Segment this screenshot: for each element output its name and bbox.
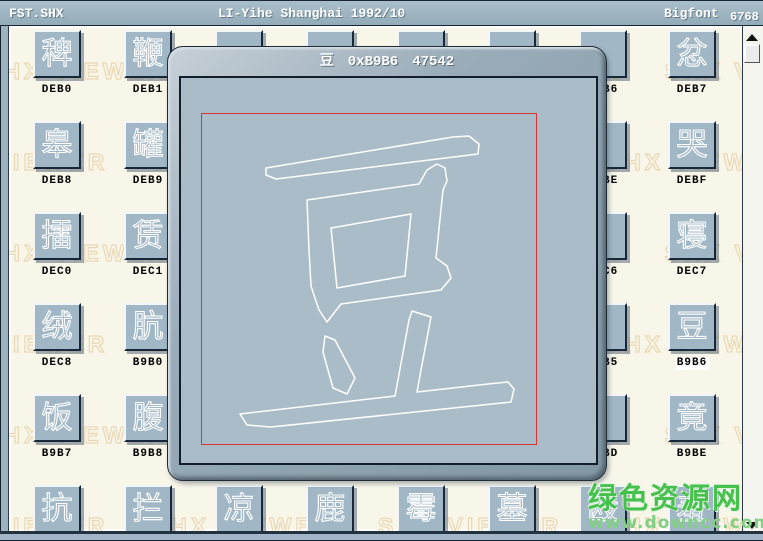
glyph-tile-face[interactable]: 拦 — [124, 485, 172, 531]
glyph-code-label: DEBF — [668, 175, 716, 188]
glyph-tile-face[interactable]: 肮 — [124, 303, 172, 351]
scrollbar-thumb[interactable] — [744, 44, 760, 63]
glyph-character: 拦 — [133, 487, 164, 531]
glyph-tile-face[interactable]: 墓 — [488, 485, 536, 531]
scrollbar-track[interactable] — [743, 26, 763, 534]
glyph-tile-face[interactable]: 皋 — [33, 121, 81, 169]
glyph-character: 皋 — [42, 123, 73, 167]
glyph-tile[interactable]: 殴 — [579, 485, 627, 531]
glyph-character: 腹 — [133, 396, 164, 440]
glyph-tile-face[interactable]: 赁 — [124, 212, 172, 260]
glyph-tile-dec7[interactable]: 寝DEC7 — [668, 212, 716, 279]
glyph-character: 殴 — [588, 487, 619, 531]
file-name: FST.SHX — [9, 6, 64, 21]
glyph-character: 肮 — [133, 305, 164, 349]
scroll-up-icon[interactable] — [746, 34, 758, 41]
glyph-tile-face[interactable]: 忿 — [668, 30, 716, 78]
glyph-tile-deb8[interactable]: 皋DEB8 — [33, 121, 81, 188]
glyph-tile-face[interactable]: 绒 — [33, 303, 81, 351]
glyph-tile-face[interactable]: 抗 — [33, 485, 81, 531]
titlebar: FST.SHX LI-Yihe Shanghai 1992/10 Bigfont… — [0, 0, 763, 26]
glyph-tile[interactable]: 霉 — [397, 485, 445, 531]
glyph-tile-face[interactable]: 稗 — [33, 30, 81, 78]
glyph-code-label: DEB7 — [668, 84, 716, 97]
glyph-tile-face[interactable]: 饭 — [33, 394, 81, 442]
glyph-code-label: DEB0 — [33, 84, 81, 97]
glyph-code-label: DEC7 — [668, 266, 716, 279]
glyph-tile[interactable]: 鹿 — [306, 485, 354, 531]
glyph-code-label: B9BE — [668, 448, 716, 461]
glyph-preview-dialog[interactable]: 豆0xB9B647542 — [167, 46, 607, 481]
dialog-title-hex: 0xB9B6 — [348, 54, 398, 70]
glyph-character: 忿 — [677, 32, 708, 76]
glyph-code-label: DEC0 — [33, 266, 81, 279]
glyph-outline-drawing — [181, 78, 600, 467]
glyph-count: 6768 — [730, 10, 759, 24]
glyph-character: 寝 — [677, 214, 708, 258]
glyph-character: 绒 — [42, 305, 73, 349]
dialog-title: 豆0xB9B647542 — [168, 47, 606, 76]
glyph-code-label: DEB1 — [124, 84, 172, 97]
glyph-tile-face[interactable]: 鞭 — [124, 30, 172, 78]
shx-font-viewer-window: { "titlebar": { "file_name": "FST.SHX", … — [0, 0, 763, 541]
glyph-character: 羞 — [677, 487, 708, 531]
glyph-character: 饭 — [42, 396, 73, 440]
glyph-tile-deb7[interactable]: 忿DEB7 — [668, 30, 716, 97]
glyph-tile-debf[interactable]: 哭DEBF — [668, 121, 716, 188]
glyph-code-label: DEC1 — [124, 266, 172, 279]
glyph-tile-face[interactable]: 竟 — [668, 394, 716, 442]
glyph-tile-b9b8[interactable]: 腹B9B8 — [124, 394, 172, 461]
glyph-character: 竟 — [677, 396, 708, 440]
glyph-character: 赁 — [133, 214, 164, 258]
glyph-code-label: DEB9 — [124, 175, 172, 188]
glyph-tile-face[interactable]: 霉 — [397, 485, 445, 531]
glyph-character: 鹿 — [315, 487, 346, 531]
glyph-tile[interactable]: 羞 — [668, 485, 716, 531]
glyph-tile-face[interactable]: 擂 — [33, 212, 81, 260]
glyph-character: 豆 — [677, 305, 708, 349]
background-watermark-text: SHX VIEWER SHX VIEWER SHX VIEWER SHX VIE… — [9, 513, 742, 531]
glyph-tile-face[interactable]: 腹 — [124, 394, 172, 442]
glyph-tile-face[interactable]: 羞 — [668, 485, 716, 531]
glyph-tile-face[interactable]: 殴 — [579, 485, 627, 531]
font-info: LI-Yihe Shanghai 1992/10 — [218, 6, 405, 21]
glyph-character: 墓 — [497, 487, 528, 531]
glyph-tile-face[interactable]: 哭 — [668, 121, 716, 169]
glyph-code-label: B9B8 — [124, 448, 172, 461]
glyph-character: 凉 — [224, 487, 255, 531]
glyph-tile[interactable]: 抗 — [33, 485, 81, 531]
glyph-tile-deb1[interactable]: 鞭DEB1 — [124, 30, 172, 97]
window-bottom-frame — [0, 534, 763, 541]
font-type-label: Bigfont — [664, 6, 719, 21]
glyph-character: 抗 — [42, 487, 73, 531]
glyph-code-label: B9B6 — [668, 357, 716, 370]
glyph-character: 鞭 — [133, 32, 164, 76]
glyph-code-label: B9B0 — [124, 357, 172, 370]
glyph-tile[interactable]: 墓 — [488, 485, 536, 531]
scroll-down-icon[interactable] — [746, 522, 758, 529]
window-left-frame — [0, 26, 9, 534]
glyph-tile-dec1[interactable]: 赁DEC1 — [124, 212, 172, 279]
glyph-tile-b9be[interactable]: 竟B9BE — [668, 394, 716, 461]
glyph-tile-deb9[interactable]: 罐DEB9 — [124, 121, 172, 188]
glyph-tile-face[interactable]: 寝 — [668, 212, 716, 260]
glyph-tile-dec0[interactable]: 擂DEC0 — [33, 212, 81, 279]
glyph-preview-canvas[interactable] — [179, 76, 598, 465]
dialog-title-decimal: 47542 — [412, 54, 454, 70]
glyph-code-label: B9B7 — [33, 448, 81, 461]
glyph-tile-b9b7[interactable]: 饭B9B7 — [33, 394, 81, 461]
dialog-title-char: 豆 — [320, 54, 334, 70]
glyph-character: 霉 — [406, 487, 437, 531]
glyph-tile[interactable]: 拦 — [124, 485, 172, 531]
glyph-tile-face[interactable]: 罐 — [124, 121, 172, 169]
glyph-tile-face[interactable]: 豆 — [668, 303, 716, 351]
glyph-character: 哭 — [677, 123, 708, 167]
glyph-tile[interactable]: 凉 — [215, 485, 263, 531]
glyph-tile-face[interactable]: 鹿 — [306, 485, 354, 531]
glyph-character: 擂 — [42, 214, 73, 258]
glyph-tile-face[interactable]: 凉 — [215, 485, 263, 531]
glyph-tile-dec8[interactable]: 绒DEC8 — [33, 303, 81, 370]
glyph-tile-deb0[interactable]: 稗DEB0 — [33, 30, 81, 97]
glyph-character: 稗 — [42, 32, 73, 76]
glyph-code-label: DEB8 — [33, 175, 81, 188]
glyph-tile-b9b0[interactable]: 肮B9B0 — [124, 303, 172, 370]
glyph-character: 罐 — [133, 123, 164, 167]
glyph-code-label: DEC8 — [33, 357, 81, 370]
glyph-tile-b9b6[interactable]: 豆B9B6 — [668, 303, 716, 370]
